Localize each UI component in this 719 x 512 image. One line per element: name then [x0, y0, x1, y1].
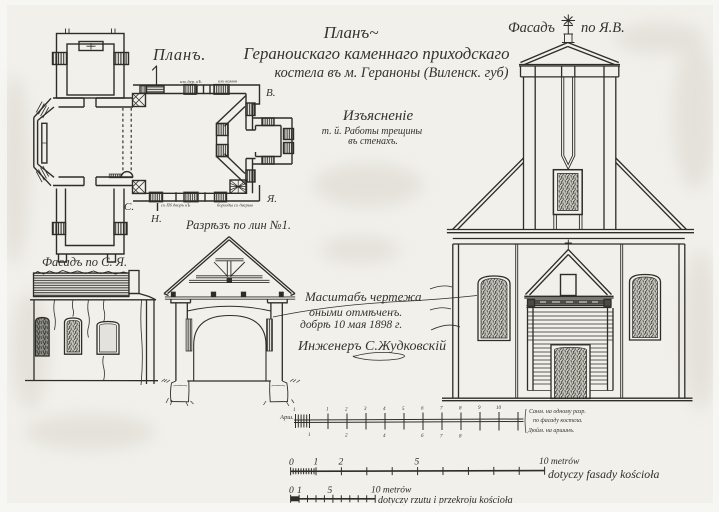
svg-text:Планъ~: Планъ~: [323, 23, 379, 42]
svg-text:1: 1: [308, 433, 311, 438]
svg-text:Планъ.: Планъ.: [152, 45, 206, 64]
svg-text:съ Пб дворъ кЪ: съ Пб дворъ кЪ: [161, 203, 190, 208]
svg-text:борозды съ дверью: борозды съ дверью: [217, 203, 254, 208]
svg-text:2: 2: [339, 458, 344, 468]
svg-text:10 metrów: 10 metrów: [371, 486, 412, 496]
svg-text:по Я.В.: по Я.В.: [581, 20, 625, 36]
svg-text:Фасадъ по С. Я.: Фасадъ по С. Я.: [42, 255, 127, 269]
svg-text:5: 5: [415, 458, 420, 468]
svg-text:костела въ м. Гераноны (Виленс: костела въ м. Гераноны (Виленск. губ): [274, 65, 508, 81]
svg-text:въ стенахъ.: въ стенахъ.: [348, 136, 398, 147]
svg-text:В.: В.: [266, 87, 275, 99]
svg-text:1: 1: [314, 458, 319, 468]
svg-text:5: 5: [328, 486, 333, 496]
svg-text:С.: С.: [124, 201, 134, 213]
svg-text:0: 0: [289, 486, 294, 496]
svg-text:Изъясненіе: Изъясненіе: [342, 108, 414, 124]
svg-text:Санм. на одному разр.: Санм. на одному разр.: [529, 408, 586, 415]
svg-text:Разрѣзъ по лин №1.: Разрѣзъ по лин №1.: [185, 218, 291, 232]
svg-text:изъ камня: изъ камня: [218, 79, 237, 84]
svg-text:Масштабъ чертежа: Масштабъ чертежа: [304, 289, 422, 304]
svg-text:Инженеръ С.Жудковскій: Инженеръ С.Жудковскій: [297, 339, 446, 354]
svg-text:1: 1: [297, 486, 302, 496]
svg-text:dotyczy fasady kościoła: dotyczy fasady kościoła: [548, 467, 659, 481]
svg-text:10 metrów: 10 metrów: [539, 457, 580, 467]
svg-text:10: 10: [496, 406, 502, 411]
svg-text:Гераноискаго каменнаго приходс: Гераноискаго каменнаго приходскаго: [242, 44, 509, 63]
svg-text:Арш.: Арш.: [279, 414, 294, 421]
svg-text:Я.: Я.: [266, 193, 277, 205]
svg-text:по фасаду костела.: по фасаду костела.: [533, 417, 583, 424]
svg-text:Дюйм. на аршинъ.: Дюйм. на аршинъ.: [527, 427, 574, 434]
svg-text:Н.: Н.: [150, 213, 162, 225]
svg-text:0: 0: [289, 458, 294, 468]
svg-text:Фасадъ: Фасадъ: [508, 20, 555, 36]
svg-text:оными отмѣченъ.: оными отмѣченъ.: [309, 305, 402, 319]
svg-text:добрѣ 10 мая 1898 г.: добрѣ 10 мая 1898 г.: [300, 319, 402, 331]
svg-text:изъ дер. кЪ: изъ дер. кЪ: [180, 79, 201, 84]
svg-text:1: 1: [326, 408, 329, 413]
svg-text:1: 1: [293, 408, 296, 413]
